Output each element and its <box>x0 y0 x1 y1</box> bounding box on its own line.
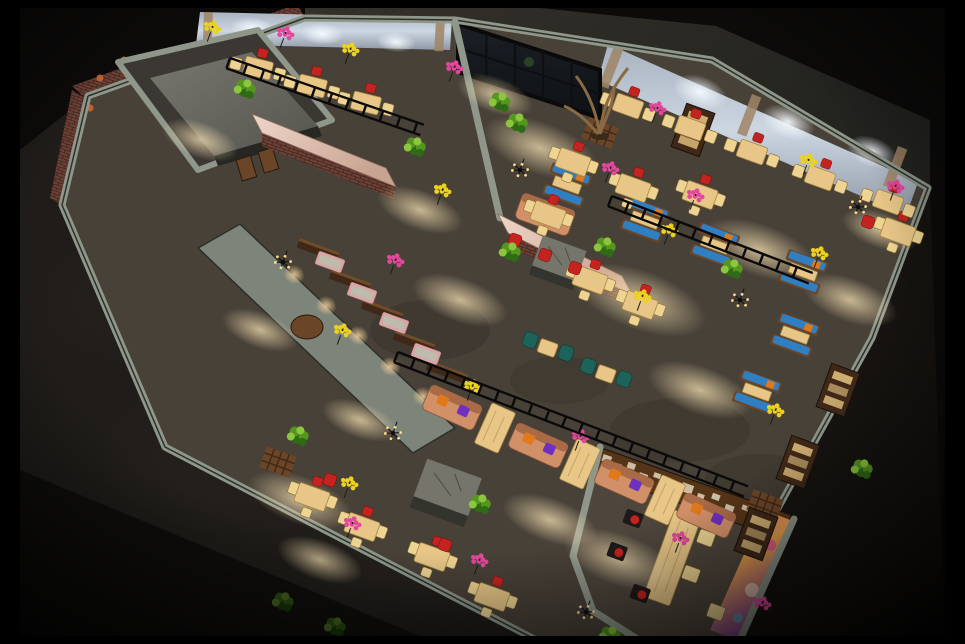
vignette <box>20 8 945 636</box>
restaurant-render: restaurant interior <box>0 0 965 644</box>
render-canvas: restaurant interior <box>0 0 965 644</box>
